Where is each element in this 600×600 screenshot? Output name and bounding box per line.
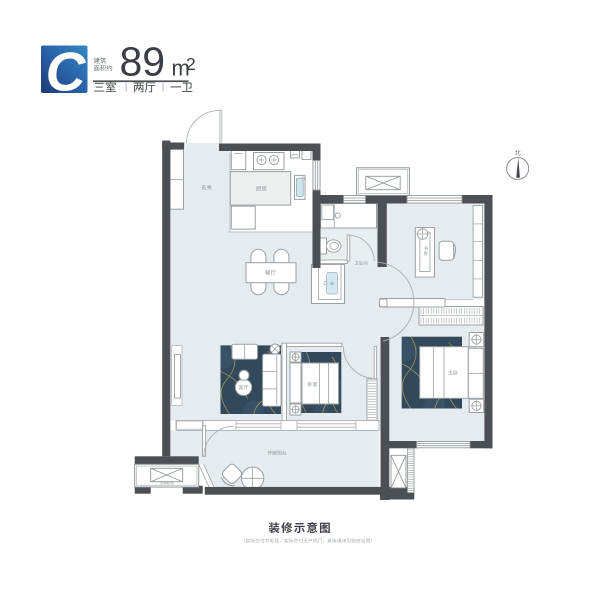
svg-text:89: 89	[120, 39, 166, 85]
svg-text:2: 2	[186, 54, 196, 74]
svg-text:C: C	[46, 41, 87, 103]
